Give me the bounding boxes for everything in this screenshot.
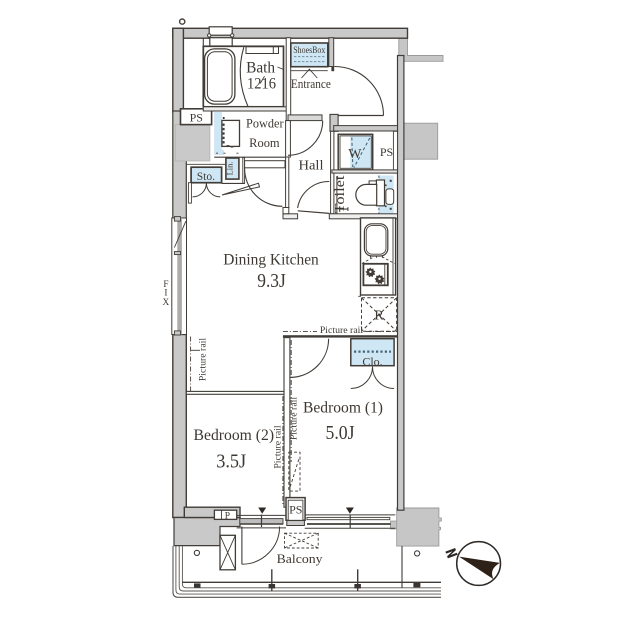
svg-text:Balcony: Balcony bbox=[277, 551, 324, 566]
svg-text:ShoesBox: ShoesBox bbox=[293, 45, 325, 55]
svg-text:Entrance: Entrance bbox=[291, 77, 331, 91]
svg-text:Toilet: Toilet bbox=[332, 175, 347, 213]
svg-text:Hall: Hall bbox=[299, 158, 324, 173]
svg-text:Clo.: Clo. bbox=[362, 354, 382, 368]
svg-text:R: R bbox=[374, 309, 384, 324]
svg-text:Room: Room bbox=[249, 136, 280, 150]
svg-text:Picture rail: Picture rail bbox=[273, 425, 284, 469]
svg-text:Picture rail: Picture rail bbox=[197, 338, 208, 382]
svg-text:PS: PS bbox=[380, 145, 393, 159]
svg-text:1216: 1216 bbox=[247, 76, 276, 93]
svg-text:9.3J: 9.3J bbox=[257, 270, 286, 292]
svg-text:Sto.: Sto. bbox=[197, 171, 215, 183]
svg-text:PS: PS bbox=[190, 111, 203, 125]
svg-text:Lin.: Lin. bbox=[225, 162, 234, 176]
svg-text:Picture rail: Picture rail bbox=[320, 325, 364, 336]
svg-text:PS: PS bbox=[289, 503, 302, 517]
svg-text:Bedroom (2): Bedroom (2) bbox=[194, 425, 275, 444]
svg-text:Bedroom (1): Bedroom (1) bbox=[303, 398, 383, 417]
svg-text:5.0J: 5.0J bbox=[326, 422, 355, 444]
svg-text:X: X bbox=[163, 298, 170, 308]
svg-text:W: W bbox=[348, 147, 362, 162]
svg-text:Bath: Bath bbox=[246, 60, 275, 77]
svg-text:P: P bbox=[225, 512, 230, 522]
svg-text:Picture rail: Picture rail bbox=[289, 397, 300, 441]
svg-text:Dining Kitchen: Dining Kitchen bbox=[223, 250, 319, 269]
svg-text:3.5J: 3.5J bbox=[216, 451, 246, 473]
svg-text:Powder: Powder bbox=[246, 116, 284, 130]
